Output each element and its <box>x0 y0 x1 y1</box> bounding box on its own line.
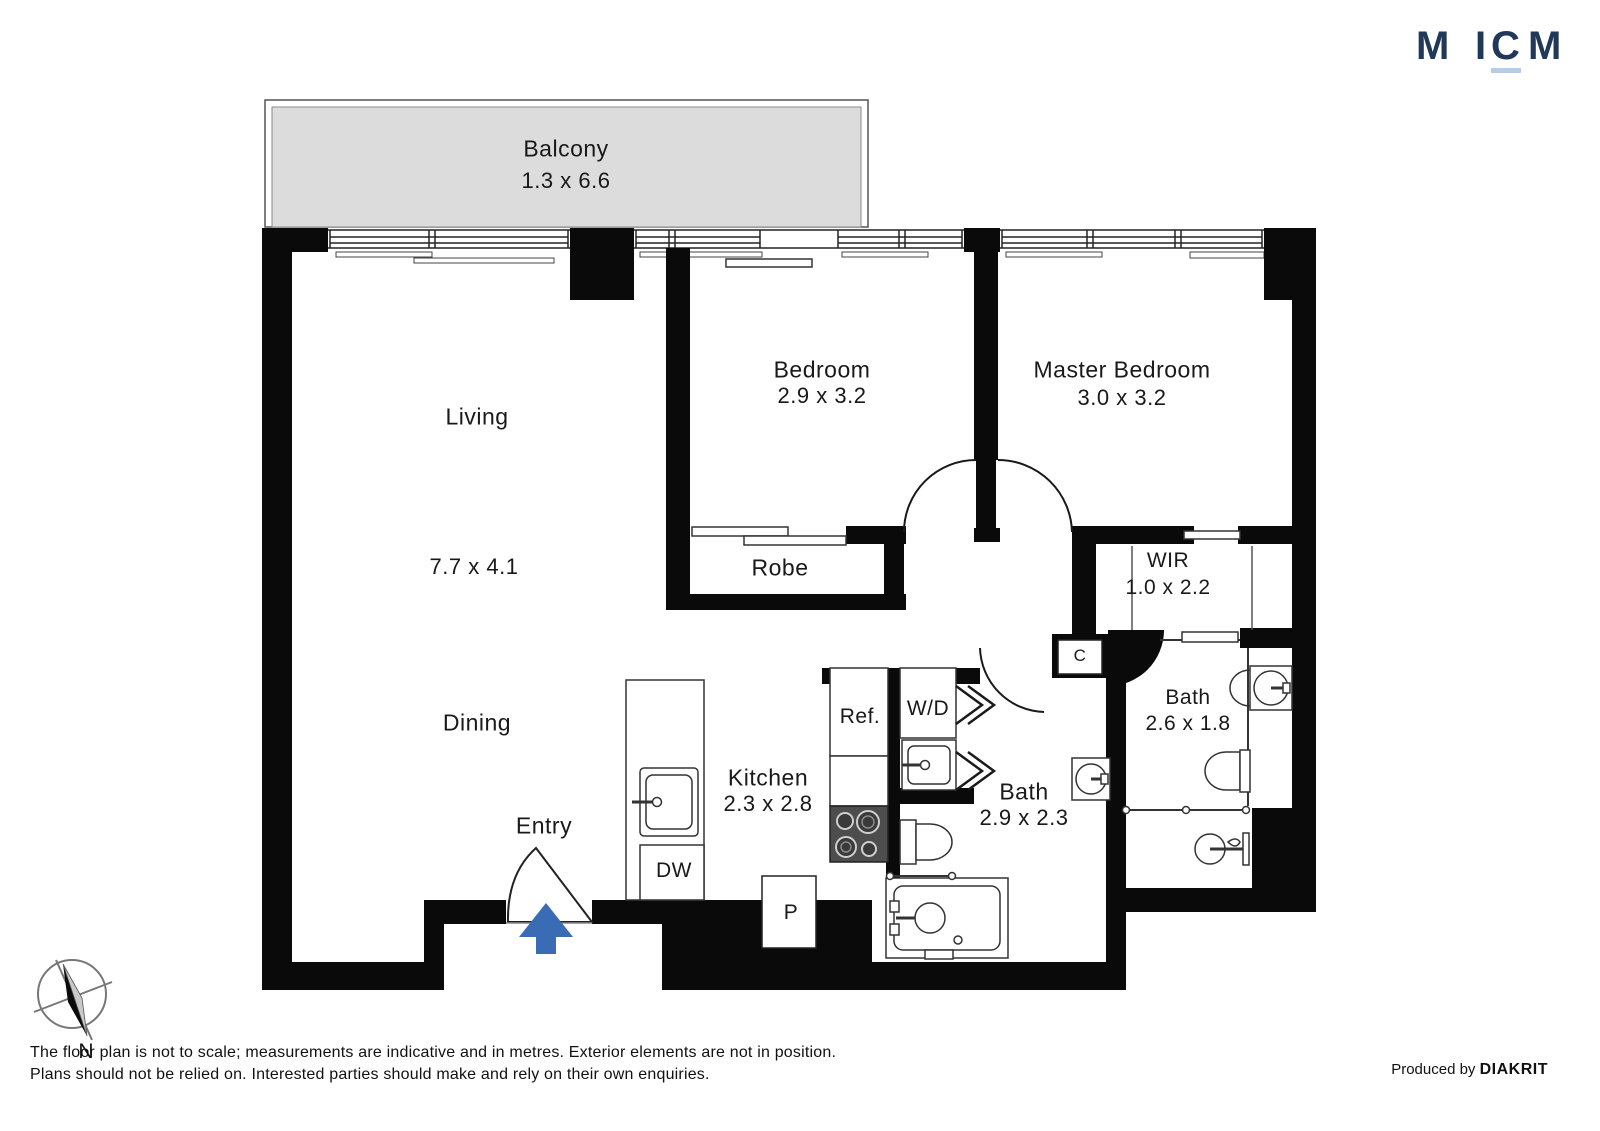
compass-icon <box>34 960 112 1040</box>
logo-letter-m2: M <box>1528 24 1561 69</box>
dishwasher-label: DW <box>656 859 692 883</box>
floor-plan-page: Balcony 1.3 x 6.6 Living 7.7 x 4.1 Dinin… <box>0 0 1600 1131</box>
bath-ensuite-dims: 2.6 x 1.8 <box>1145 712 1230 736</box>
logo-letter-m1: M <box>1416 24 1449 69</box>
bath-main-dims: 2.9 x 2.3 <box>980 805 1069 831</box>
living-label: Living <box>445 404 508 431</box>
logo-letter-i: I <box>1475 24 1486 69</box>
cooktop <box>830 806 888 862</box>
master-bedroom-label: Master Bedroom <box>1033 357 1210 384</box>
bath-main-label: Bath <box>999 779 1048 806</box>
balcony-dims: 1.3 x 6.6 <box>522 168 611 194</box>
bath-ensuite-label: Bath <box>1165 686 1210 710</box>
bedroom-label: Bedroom <box>774 357 871 384</box>
balcony-area <box>265 100 868 227</box>
producer-name: DIAKRIT <box>1480 1061 1548 1078</box>
wir-dims: 1.0 x 2.2 <box>1125 576 1210 600</box>
logo-underline <box>1491 68 1521 73</box>
fridge-label: Ref. <box>840 705 881 729</box>
disclaimer-line-2: Plans should not be relied on. Intereste… <box>30 1066 710 1084</box>
produced-by: Produced by DIAKRIT <box>1391 1061 1548 1079</box>
kitchen-label: Kitchen <box>728 765 808 792</box>
logo-letter-c: C <box>1491 24 1520 69</box>
washer-dryer-label: W/D <box>907 697 949 721</box>
produced-by-text: Produced by <box>1391 1061 1475 1078</box>
pantry-label: P <box>784 901 799 925</box>
balcony-label: Balcony <box>523 136 608 163</box>
robe-label: Robe <box>752 555 809 582</box>
cupboard-label: C <box>1074 646 1087 666</box>
bedroom-dims: 2.9 x 3.2 <box>778 383 867 409</box>
dining-label: Dining <box>443 710 511 737</box>
master-bedroom-dims: 3.0 x 3.2 <box>1078 385 1167 411</box>
entry-label: Entry <box>516 813 572 840</box>
kitchen-dims: 2.3 x 2.8 <box>724 791 813 817</box>
disclaimer-line-1: The floor plan is not to scale; measurem… <box>30 1044 836 1062</box>
living-dims: 7.7 x 4.1 <box>430 554 519 580</box>
facade-windows <box>328 228 1264 267</box>
wir-label: WIR <box>1147 549 1189 573</box>
